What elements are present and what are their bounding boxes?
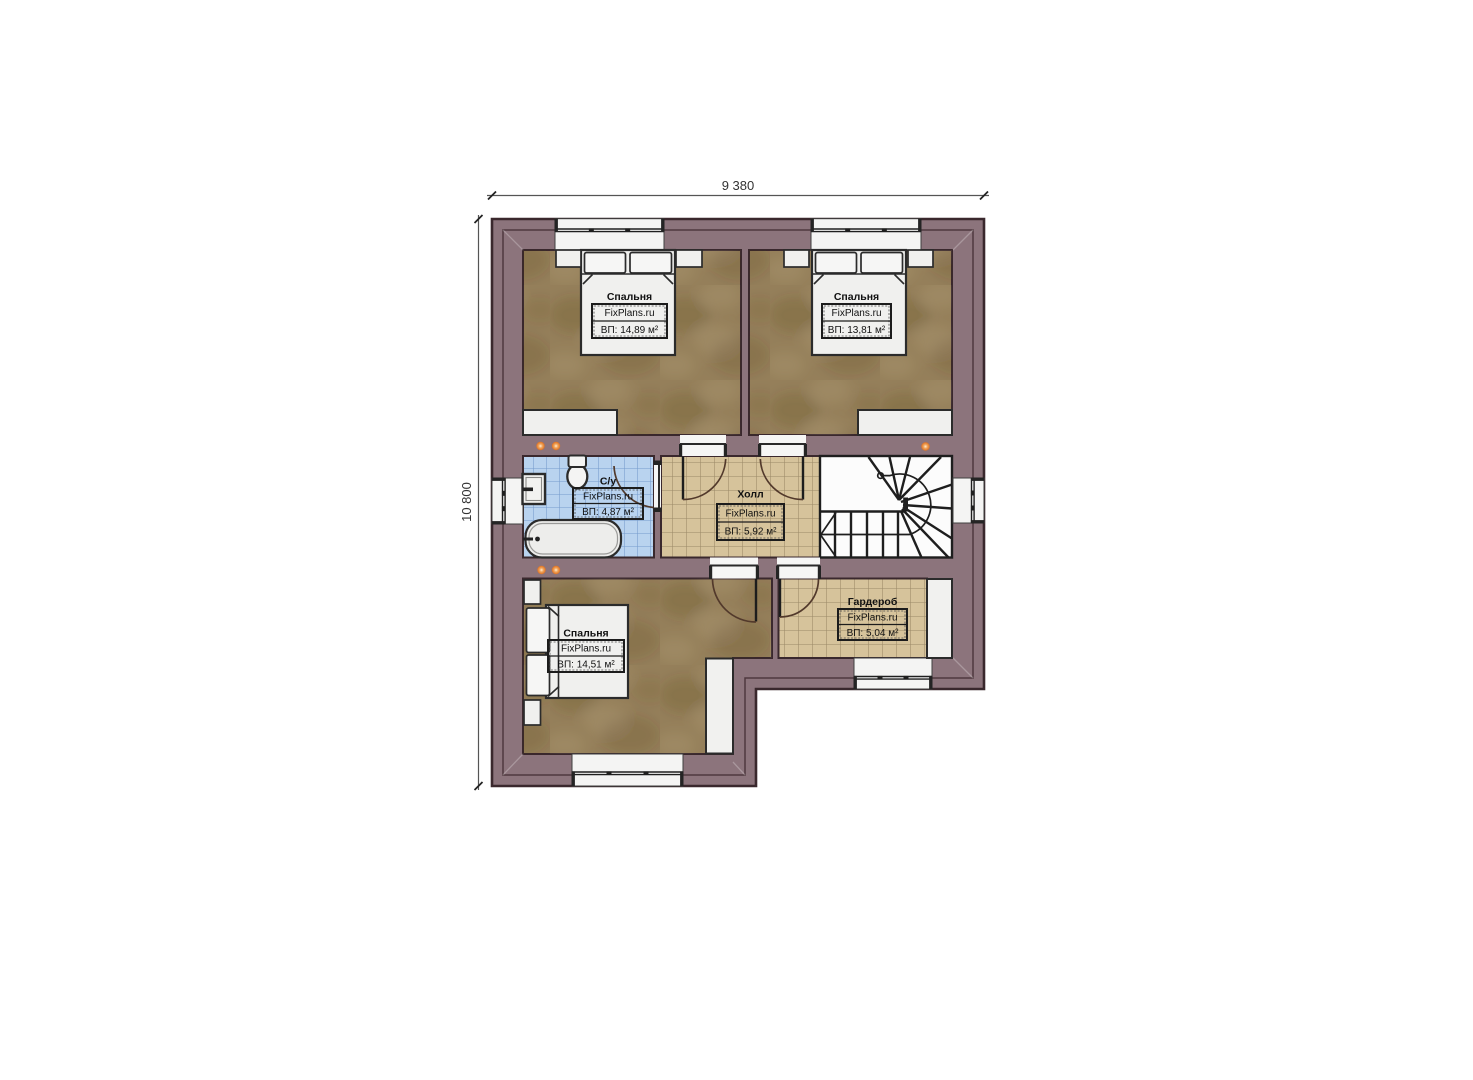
- svg-text:ВП: 14,51 м²: ВП: 14,51 м²: [557, 660, 615, 671]
- svg-text:ВП: 14,89 м²: ВП: 14,89 м²: [601, 325, 659, 336]
- svg-text:9 380: 9 380: [722, 178, 755, 193]
- svg-text:FixPlans.ru: FixPlans.ru: [847, 612, 897, 623]
- svg-text:FixPlans.ru: FixPlans.ru: [583, 491, 633, 502]
- svg-text:ВП: 5,04 м²: ВП: 5,04 м²: [847, 628, 900, 639]
- svg-text:Спальня: Спальня: [607, 291, 652, 303]
- svg-text:FixPlans.ru: FixPlans.ru: [725, 509, 775, 520]
- svg-text:С/у: С/у: [600, 476, 617, 488]
- svg-text:FixPlans.ru: FixPlans.ru: [561, 644, 611, 655]
- svg-text:Холл: Холл: [737, 489, 763, 501]
- svg-text:ВП: 13,81 м²: ВП: 13,81 м²: [828, 325, 886, 336]
- svg-text:ВП: 4,87 м²: ВП: 4,87 м²: [582, 507, 635, 518]
- svg-text:FixPlans.ru: FixPlans.ru: [831, 308, 881, 319]
- svg-text:Спальня: Спальня: [563, 628, 608, 640]
- svg-text:Гардероб: Гардероб: [848, 596, 898, 608]
- svg-text:Спальня: Спальня: [834, 291, 879, 303]
- svg-text:FixPlans.ru: FixPlans.ru: [604, 308, 654, 319]
- svg-text:10 800: 10 800: [459, 482, 474, 522]
- svg-text:ВП: 5,92 м²: ВП: 5,92 м²: [725, 527, 778, 538]
